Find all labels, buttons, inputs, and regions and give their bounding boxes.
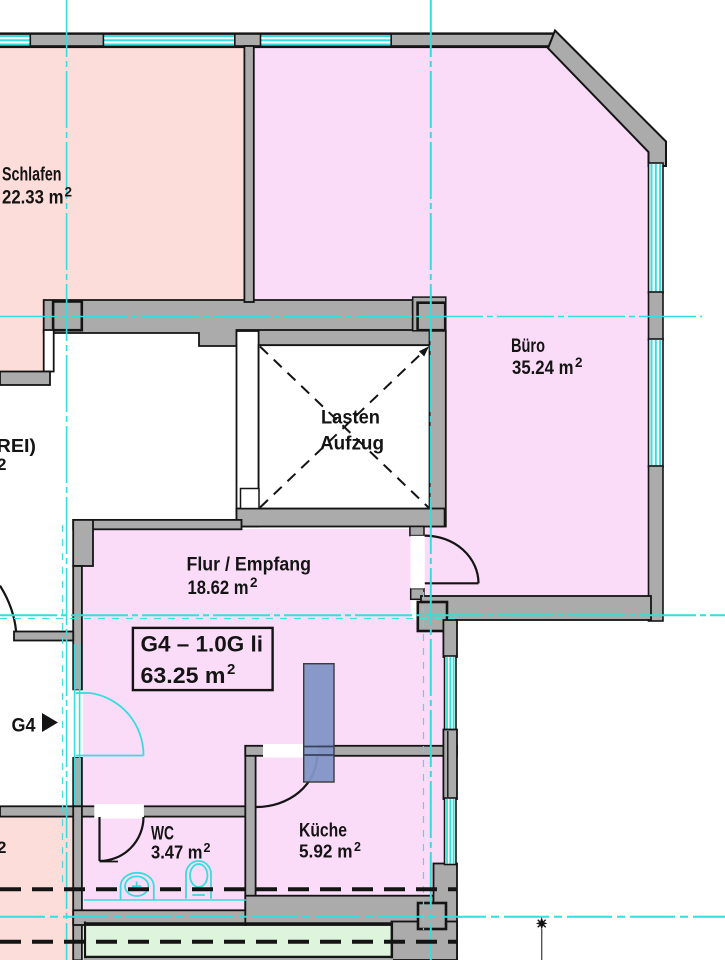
svg-text:Büro: Büro bbox=[511, 336, 545, 357]
svg-text:22.33 m: 22.33 m bbox=[2, 188, 64, 209]
svg-text:2: 2 bbox=[227, 661, 235, 678]
svg-text:2: 2 bbox=[204, 841, 211, 855]
svg-text:18.62 m: 18.62 m bbox=[188, 578, 249, 599]
svg-text:G4 – 1.0G li: G4 – 1.0G li bbox=[141, 632, 264, 657]
svg-text:5.92 m: 5.92 m bbox=[299, 842, 353, 862]
svg-text:35.24 m: 35.24 m bbox=[512, 358, 574, 379]
svg-text:Aufzug: Aufzug bbox=[320, 434, 384, 455]
svg-text:3.47 m: 3.47 m bbox=[151, 843, 203, 863]
svg-text:63.25 m: 63.25 m bbox=[141, 663, 226, 688]
svg-text:Lasten: Lasten bbox=[321, 408, 380, 429]
svg-text:2: 2 bbox=[0, 455, 6, 474]
svg-text:WC: WC bbox=[151, 824, 174, 845]
svg-text:Schlafen: Schlafen bbox=[2, 165, 62, 186]
svg-text:2: 2 bbox=[250, 575, 258, 590]
svg-text:Flur / Empfang: Flur / Empfang bbox=[187, 555, 312, 576]
svg-text:G4: G4 bbox=[12, 716, 36, 737]
svg-text:2: 2 bbox=[575, 355, 583, 370]
svg-text:2: 2 bbox=[0, 838, 6, 857]
svg-text:2: 2 bbox=[354, 840, 361, 854]
svg-text:2: 2 bbox=[65, 185, 73, 200]
svg-text:(FREI): (FREI) bbox=[0, 436, 36, 456]
svg-text:Küche: Küche bbox=[299, 821, 347, 842]
